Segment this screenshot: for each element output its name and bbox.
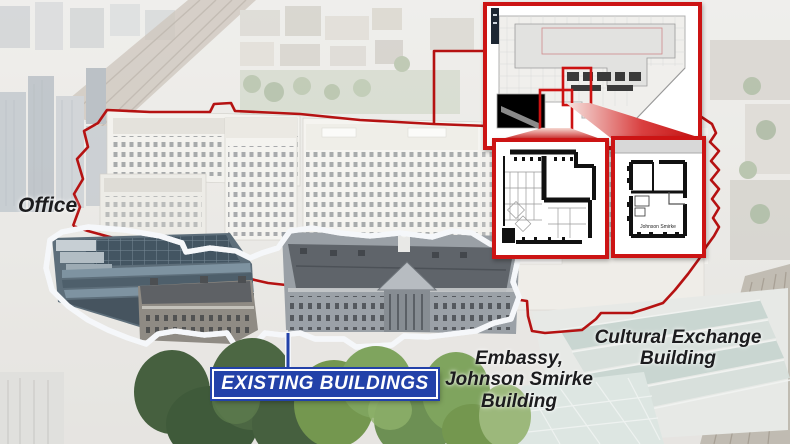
embassy-label-line3: Building [438, 391, 600, 412]
office-label: Office [18, 194, 77, 218]
site-plan-inset [483, 2, 702, 150]
johnson-smirke-building [282, 231, 520, 334]
cultural-exchange-label-line1: Cultural Exchange [588, 327, 768, 348]
cultural-exchange-label-line2: Building [588, 348, 768, 369]
existing-buildings-label-box: EXISTING BUILDINGS [212, 369, 438, 399]
site-plan-drawing [487, 6, 698, 146]
basement-plan-inset-right: Johnson Smirke [611, 136, 706, 258]
basement-plan-drawing-right: Johnson Smirke [615, 140, 702, 254]
basement-plan-drawing-left [496, 142, 605, 255]
cultural-exchange-label: Cultural Exchange Building [588, 327, 768, 370]
existing-buildings-label: EXISTING BUILDINGS [221, 373, 428, 395]
embassy-label: Embassy, Johnson Smirke Building [438, 348, 600, 412]
embassy-label-line2: Johnson Smirke [438, 369, 600, 390]
basement-plan-inset-left [492, 138, 609, 259]
annotated-aerial-graphic: Johnson Smirke Office EXISTING BUILDINGS… [0, 0, 790, 444]
embassy-label-line1: Embassy, [438, 348, 600, 369]
plan-building-label: Johnson Smirke [640, 224, 676, 230]
